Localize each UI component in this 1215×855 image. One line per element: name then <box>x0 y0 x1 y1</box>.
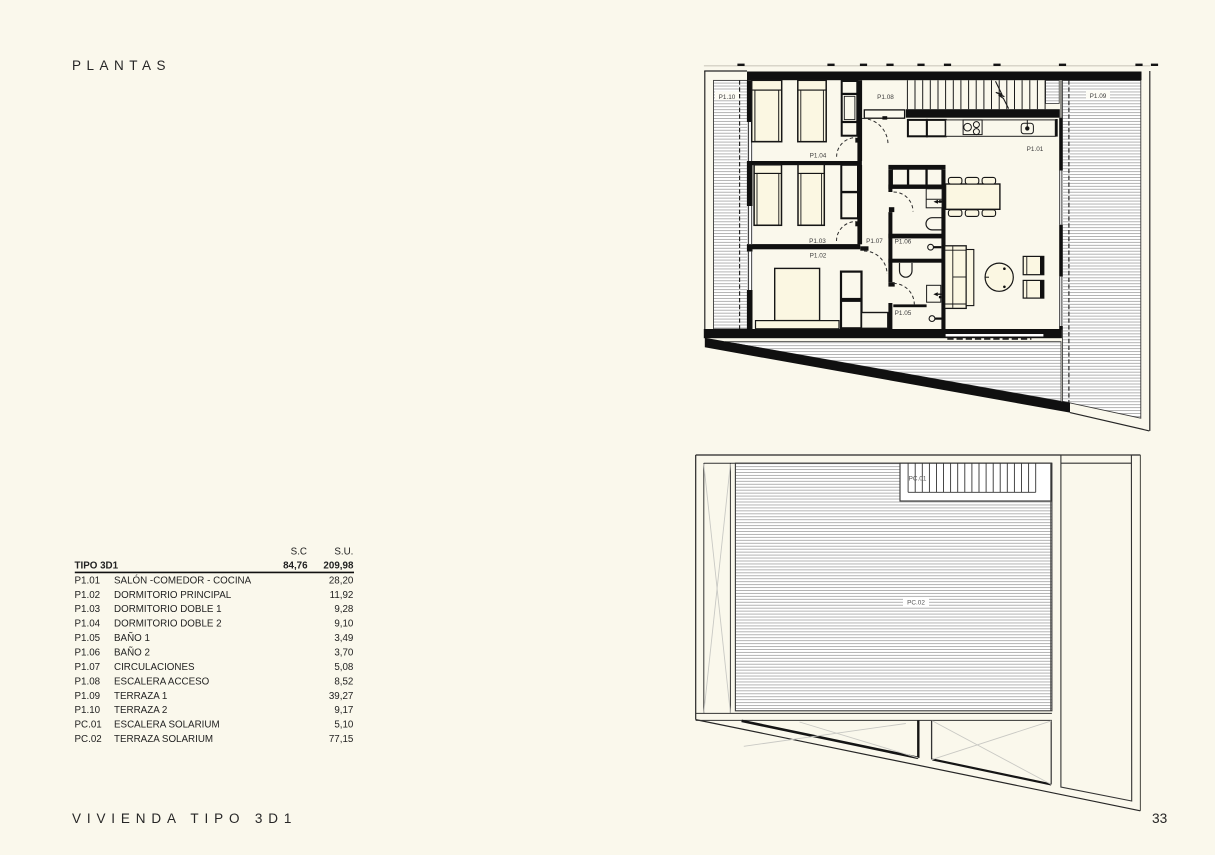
svg-text:8,52: 8,52 <box>334 676 353 687</box>
svg-text:P1.06: P1.06 <box>895 239 912 246</box>
svg-text:P1.02: P1.02 <box>810 253 827 260</box>
svg-text:SALÓN -COMEDOR - COCINA: SALÓN -COMEDOR - COCINA <box>114 575 252 586</box>
svg-text:P1.10: P1.10 <box>75 705 101 716</box>
svg-text:P1.07: P1.07 <box>866 238 883 245</box>
svg-text:84,76: 84,76 <box>283 561 308 572</box>
svg-text:P1.08: P1.08 <box>877 94 894 101</box>
svg-text:PC.01: PC.01 <box>75 720 102 731</box>
svg-text:P1.01: P1.01 <box>1027 146 1044 153</box>
svg-text:S.U.: S.U. <box>334 547 353 558</box>
svg-text:ESCALERA ACCESO: ESCALERA ACCESO <box>114 676 210 687</box>
svg-text:P1.04: P1.04 <box>75 619 101 630</box>
svg-text:BAÑO 2: BAÑO 2 <box>114 648 150 659</box>
svg-text:P1.09: P1.09 <box>75 691 101 702</box>
svg-text:S.C: S.C <box>291 547 307 558</box>
svg-text:BAÑO 1: BAÑO 1 <box>114 633 150 644</box>
svg-text:CIRCULACIONES: CIRCULACIONES <box>114 662 195 673</box>
svg-text:9,17: 9,17 <box>334 705 353 716</box>
svg-text:PC.02: PC.02 <box>907 600 925 607</box>
svg-text:9,10: 9,10 <box>334 619 354 630</box>
svg-text:P1.03: P1.03 <box>809 238 826 245</box>
svg-text:5,08: 5,08 <box>334 662 354 673</box>
svg-text:DORMITORIO DOBLE 1: DORMITORIO DOBLE 1 <box>114 604 222 615</box>
svg-text:5,10: 5,10 <box>334 720 354 731</box>
svg-text:P1.09: P1.09 <box>1090 93 1107 100</box>
svg-text:P1.02: P1.02 <box>75 590 101 601</box>
svg-text:9,28: 9,28 <box>334 604 354 615</box>
svg-text:TERRAZA SOLARIUM: TERRAZA SOLARIUM <box>114 734 213 745</box>
svg-text:TIPO 3D1: TIPO 3D1 <box>75 561 119 572</box>
svg-text:P1.04: P1.04 <box>810 153 827 160</box>
svg-text:77,15: 77,15 <box>329 734 354 745</box>
svg-text:28,20: 28,20 <box>329 575 354 586</box>
svg-text:DORMITORIO PRINCIPAL: DORMITORIO PRINCIPAL <box>114 590 232 601</box>
svg-text:P1.01: P1.01 <box>75 575 101 586</box>
svg-text:VIVIENDA TIPO 3D1: VIVIENDA TIPO 3D1 <box>72 811 297 826</box>
svg-text:33: 33 <box>1152 811 1168 826</box>
svg-text:P1.03: P1.03 <box>75 604 101 615</box>
svg-text:P1.05: P1.05 <box>895 310 912 317</box>
svg-text:PLANTAS: PLANTAS <box>72 58 171 73</box>
svg-text:PC.02: PC.02 <box>75 734 102 745</box>
svg-text:39,27: 39,27 <box>329 691 354 702</box>
svg-text:TERRAZA 2: TERRAZA 2 <box>114 705 167 716</box>
svg-text:3,70: 3,70 <box>334 648 354 659</box>
svg-text:ESCALERA SOLARIUM: ESCALERA SOLARIUM <box>114 720 220 731</box>
svg-text:209,98: 209,98 <box>323 561 354 572</box>
svg-text:3,49: 3,49 <box>334 633 353 644</box>
svg-text:P1.05: P1.05 <box>75 633 101 644</box>
svg-text:PC.01: PC.01 <box>909 476 927 483</box>
svg-text:DORMITORIO DOBLE 2: DORMITORIO DOBLE 2 <box>114 619 222 630</box>
svg-text:TERRAZA 1: TERRAZA 1 <box>114 691 167 702</box>
svg-text:P1.08: P1.08 <box>75 676 101 687</box>
svg-text:11,92: 11,92 <box>330 590 354 601</box>
svg-text:P1.07: P1.07 <box>75 662 101 673</box>
svg-text:P1.10: P1.10 <box>719 94 736 101</box>
svg-text:P1.06: P1.06 <box>75 648 101 659</box>
